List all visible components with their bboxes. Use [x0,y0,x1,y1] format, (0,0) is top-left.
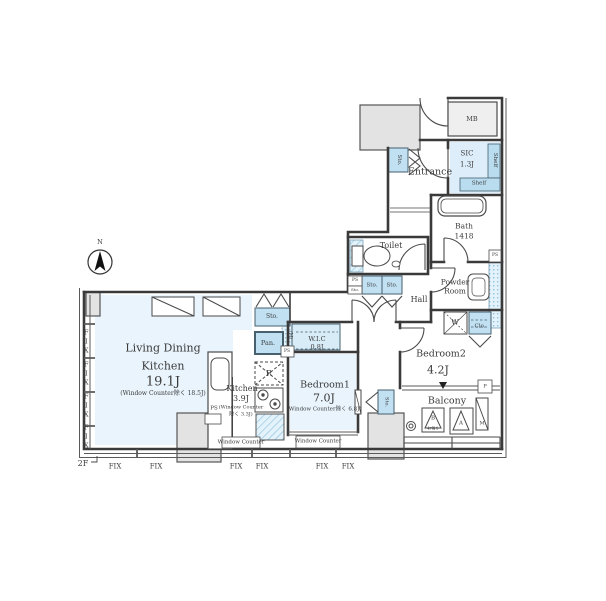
corridor-storage-label: Sto. [384,397,389,407]
entrance-storage-label: Sto. [395,155,401,166]
powder-room-line1: Powder [441,278,470,286]
corridor-fold-door [366,392,378,412]
hall-name: Hall [411,296,428,304]
floorplan-drawing [0,0,606,601]
bath-size: 1418 [454,232,473,240]
meter-box-label: MB [466,116,477,123]
ldk-double-door-right [374,300,396,322]
fix-label-left-4: FIX [83,424,90,451]
closet-fold-door [469,336,491,347]
floorplan-canvas: Living Dining Kitchen 19.1J (Window Coun… [0,0,606,601]
kitchen-name: Kitchen [226,385,257,393]
fix-label-bottom-2: FIX [150,464,163,471]
kitchen-note2: 除く 3.3J) [229,413,253,418]
balcony-rail [404,437,500,449]
ldk-note: (Window Counter除く 18.5J) [120,391,205,397]
fix-label-left-1: FIX [83,329,90,356]
balcony-mark-b: B [431,416,435,422]
ps-label-toilet: PS [352,279,358,284]
faucet-symbol-inner [409,424,413,428]
wic-name: W.I.C [308,336,325,343]
kitchen-sink [208,352,232,449]
bathtub [438,196,486,216]
sic-size: 1.3J [460,162,474,169]
entrance-step [390,208,431,212]
kitchen-lower-cabinet [256,414,284,440]
hall-storage-label-2: Sto. [387,283,398,289]
meter-strip-label: (M) [287,331,292,339]
column-mid [368,413,404,459]
bedroom1-note: (Window Counter除く 6.8J) [287,407,362,413]
fix-label-bottom-5: FIX [316,464,329,471]
toilet-name: Toilet [380,242,403,250]
balcony-mark-b-note: 4F降り [427,427,439,431]
wic-size: 0.8J [311,344,324,351]
bedroom2-name: Bedroom2 [416,349,466,359]
kitchen-note1: (Window Counter [219,406,264,411]
sic-name: SIC [461,151,474,158]
compass-north-label: N [97,239,103,246]
floor-label: 2F [78,460,89,468]
sic-shelf-vertical-label: Shelf [491,153,497,167]
ldk-size: 19.1J [146,376,180,389]
fix-label-bottom-1: FIX [109,464,122,471]
bedroom2-size: 4.2J [427,365,449,376]
washbasin [468,274,489,300]
entrance-door [420,98,448,126]
bath-door [444,238,468,262]
ldk-double-door-left [352,300,374,322]
kitchen-storage-label: Sto. [266,314,278,320]
hall-storage-label-1: Sto. [367,283,378,289]
kitchen-fold-doors [256,294,289,307]
ldk-name-line1: Living Dining [125,343,200,354]
faucet-symbol [407,422,416,431]
washer-label: W [451,318,459,326]
ps-label-bath: PS [492,254,498,259]
ps-label-ldk: PS [210,406,217,412]
bedroom1-size: 7.0J [313,393,335,404]
ldk-name-line2: Kitchen [142,361,185,372]
balcony-mark-m: M [479,422,484,427]
pantry-label: Pan. [261,340,275,347]
toilet-door [399,244,425,270]
fix-label-left-3: FIX [83,393,90,420]
fix-label-bottom-6: FIX [342,464,355,471]
powder-room-line2: Room [444,287,466,295]
compass [88,250,112,274]
ps-label-kitchen: PS [284,350,290,355]
floor-mark [91,456,97,462]
column-top [360,105,420,150]
sic-shelf-horizontal-label: Shelf [472,181,486,187]
refrigerator-label: R [266,370,272,379]
fix-label-left-2: FIX [83,361,90,388]
fix-label-bottom-4: FIX [256,464,269,471]
pipe-label: P [483,385,486,390]
balcony-name: Balcony [428,396,466,406]
window-counter-label-1: Window Counter [218,440,265,446]
closet-label: Clo. [475,324,486,330]
column-left [86,292,100,316]
window-counter-label-2: Window Counter [295,439,342,445]
bedroom1-name: Bedroom1 [300,380,350,390]
fix-label-bottom-3: FIX [230,464,243,471]
kitchen-size: 3.9J [233,395,249,403]
entrance-name: Entrance [408,167,452,177]
hall-storage-label-small: Sto. [351,288,359,292]
balcony-mark-a: A [459,421,463,427]
bath-name: Bath [455,222,473,230]
